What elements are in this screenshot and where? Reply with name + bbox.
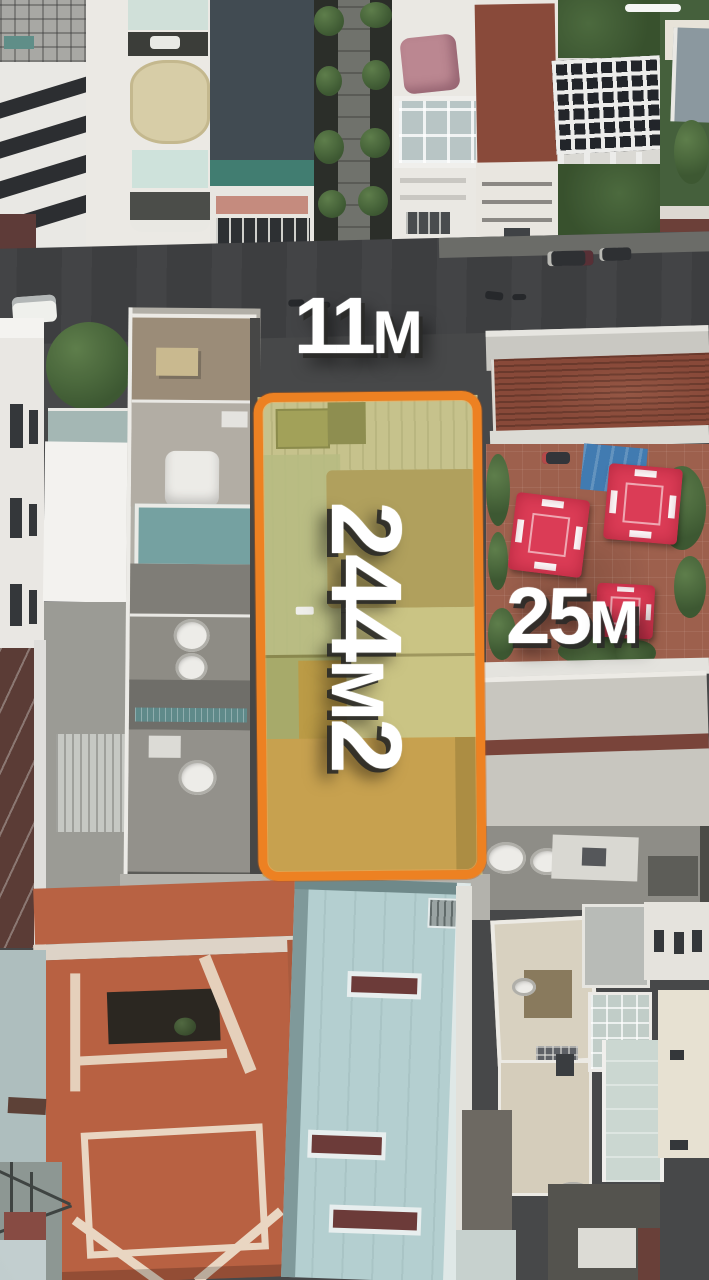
maroon-panel xyxy=(638,1228,660,1280)
round-tank-terrace xyxy=(129,613,254,683)
white-trim xyxy=(347,971,422,1000)
alley-with-plants xyxy=(314,0,392,250)
window-slit xyxy=(10,498,22,538)
area-superscript: 2 xyxy=(310,718,422,771)
red-cafe-umbrella xyxy=(603,463,683,545)
motorbike xyxy=(512,294,526,300)
dark-lower-zone xyxy=(548,1184,660,1280)
terrace-clutter xyxy=(156,348,198,376)
tile-corner xyxy=(0,1240,46,1280)
rooftop-box xyxy=(149,736,181,758)
white-rooftop xyxy=(43,441,131,602)
depth-label: 25M xyxy=(506,580,636,652)
corrugated-panel xyxy=(56,734,130,832)
teal-skylight xyxy=(134,503,259,568)
red-cafe-umbrella xyxy=(508,492,591,578)
maroon-stripe xyxy=(311,1135,382,1155)
lower-roof xyxy=(128,729,253,872)
window-slit xyxy=(10,584,22,626)
building-west-neighbor xyxy=(123,307,260,892)
water-tank-cylinder xyxy=(165,451,219,507)
pink-canopy xyxy=(399,33,461,95)
building-skylight-house xyxy=(392,0,476,248)
plant xyxy=(486,454,510,526)
gray-terrace xyxy=(130,563,254,614)
plant xyxy=(674,120,709,184)
plant xyxy=(360,2,392,28)
plant xyxy=(488,532,508,590)
balcony-rail xyxy=(482,182,552,186)
dark-terrace xyxy=(130,192,210,220)
rooftop-cluster-southeast xyxy=(456,878,709,1280)
white-box xyxy=(578,1228,636,1268)
area-number: 244 xyxy=(310,501,422,659)
maroon-stripe xyxy=(351,976,418,994)
aerial-photo: 11M 244M2 25M xyxy=(0,0,709,1280)
window-slit xyxy=(29,504,37,536)
window xyxy=(674,932,684,954)
frontage-number: 11 xyxy=(294,281,373,370)
frontage-label: 11M xyxy=(294,290,420,362)
window-slit xyxy=(29,410,38,444)
round-water-tank xyxy=(174,619,210,652)
plant xyxy=(318,190,346,218)
building-solar-roof xyxy=(210,0,314,252)
cream-wall xyxy=(658,990,709,1158)
rooftop-scaffold xyxy=(0,0,86,62)
round-water-tank xyxy=(178,760,216,795)
motorbike xyxy=(485,291,504,301)
building-top-west xyxy=(0,0,86,256)
building-left-white-facade xyxy=(0,318,44,648)
white-facade xyxy=(644,902,709,980)
dark-window xyxy=(406,212,450,234)
solar-panel-roof xyxy=(210,0,314,162)
rooftop-shed xyxy=(551,835,638,882)
white-trim xyxy=(307,1130,386,1161)
salmon-awning xyxy=(216,196,308,214)
white-trim xyxy=(329,1204,422,1235)
plant xyxy=(362,60,390,90)
area-unit: M xyxy=(316,659,399,718)
building-pergola-grid xyxy=(558,0,660,236)
window xyxy=(670,1140,688,1150)
balcony-sill xyxy=(400,178,466,183)
mint-glass-panel xyxy=(132,150,208,188)
building-maroon-roof xyxy=(476,0,558,246)
maroon-corrugated-roof xyxy=(475,3,558,162)
glass-corridor xyxy=(602,1040,664,1182)
courtyard-plant xyxy=(174,1017,197,1036)
foliage xyxy=(558,164,660,236)
balcony-rail xyxy=(482,200,552,204)
depth-number: 25 xyxy=(506,571,589,660)
cyan-building xyxy=(281,877,471,1280)
maroon-band xyxy=(660,219,709,232)
plant xyxy=(358,186,388,216)
area-label: 244M2 xyxy=(321,501,411,770)
maroon-roof-stripe xyxy=(478,733,709,755)
mint-roof-panel xyxy=(128,0,208,30)
window xyxy=(692,930,702,952)
plant xyxy=(314,6,344,36)
rooftop-box xyxy=(150,36,180,49)
balcony-rail xyxy=(482,218,552,222)
dark-terrace xyxy=(129,679,253,730)
tank-terrace xyxy=(131,399,256,507)
window-slit xyxy=(29,590,37,624)
terracotta-roof-complex xyxy=(21,879,327,1280)
parapet xyxy=(0,318,44,338)
frontage-unit: M xyxy=(373,299,420,366)
gray-roof xyxy=(582,904,650,988)
plant xyxy=(314,130,344,164)
wood-beam xyxy=(8,1097,47,1115)
parked-motorbikes xyxy=(547,250,593,266)
teal-awning xyxy=(4,36,34,49)
parapet-curve xyxy=(130,220,210,232)
tiled-walkway xyxy=(456,1230,516,1280)
plant xyxy=(360,128,390,158)
pale-blue-wall-west xyxy=(0,950,46,1162)
shed-hatch xyxy=(582,848,607,867)
window-slit xyxy=(10,404,23,448)
depth-unit: M xyxy=(589,589,636,656)
small-water-tank xyxy=(512,978,536,996)
white-dash xyxy=(625,4,681,12)
motorbike xyxy=(542,452,570,464)
window xyxy=(670,1050,684,1060)
window-grid xyxy=(216,218,310,244)
plant xyxy=(316,66,342,96)
pergola-grid-roof xyxy=(552,55,665,155)
parked-motorbikes xyxy=(599,247,631,261)
round-water-tank xyxy=(486,842,526,874)
plant xyxy=(674,556,706,618)
upper-tile-band xyxy=(33,879,303,944)
beige-tiled-roof xyxy=(498,1060,592,1196)
balcony-sill xyxy=(400,195,466,200)
teal-mosaic-strip xyxy=(135,708,247,723)
street-tree xyxy=(46,322,132,410)
maroon-stripe xyxy=(333,1210,418,1231)
building-water-tank-house xyxy=(86,0,210,256)
slate-roof xyxy=(670,27,709,122)
white-band xyxy=(660,206,709,219)
main-tiled-roof xyxy=(24,951,327,1280)
building-top-east-corner xyxy=(660,0,709,232)
ac-unit xyxy=(222,411,248,427)
ridge-cap xyxy=(77,1049,227,1066)
teal-band xyxy=(210,160,314,186)
round-water-tank xyxy=(175,653,207,682)
window xyxy=(654,930,664,952)
tan-terrace xyxy=(132,313,257,404)
courtyard-opening xyxy=(107,988,221,1044)
gray-metal-roof xyxy=(476,670,709,834)
cream-water-tank xyxy=(130,60,210,144)
glass-skylight xyxy=(394,96,482,168)
dark-vent xyxy=(556,1054,574,1076)
rust-corrugated-roof xyxy=(491,353,709,434)
ridge-cap xyxy=(70,973,80,1091)
